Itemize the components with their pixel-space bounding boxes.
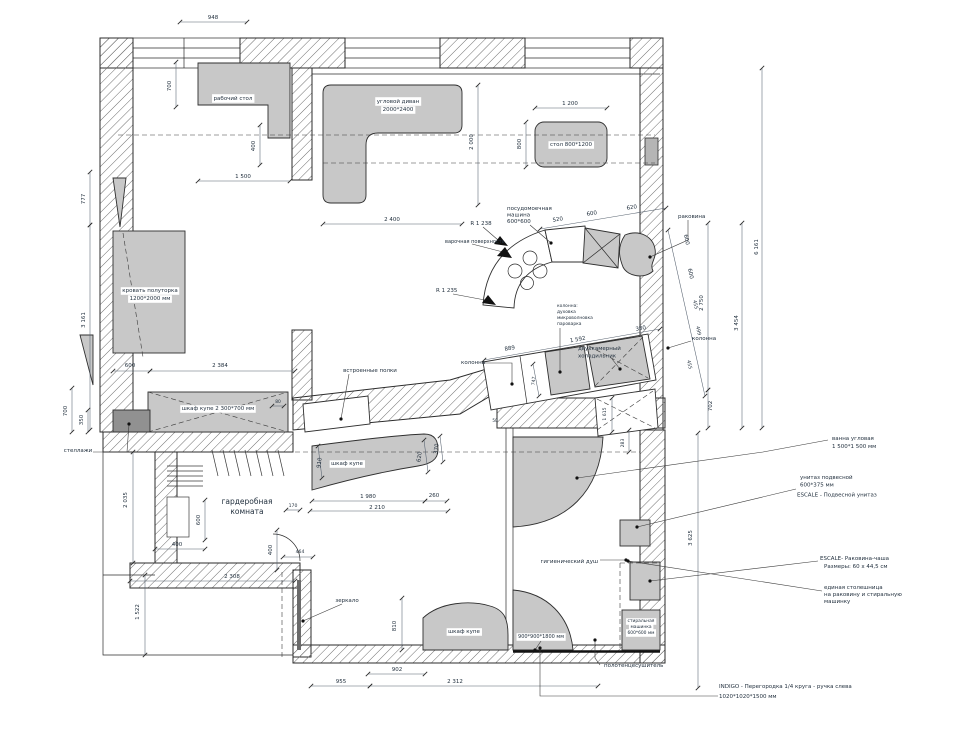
bath-callout-1: ванна угловая (832, 436, 874, 442)
fridge-label-2: холодильник (578, 354, 617, 360)
dimension-text: 464 (296, 549, 305, 555)
dimension-text: 948 (208, 15, 219, 21)
toilet-callout-2: 600*375 мм (800, 483, 834, 489)
bottom-wardrobe-label: шкаф купе (448, 629, 480, 635)
dimension-text: 889 (504, 345, 516, 353)
dishwasher-label-3: 600*600 (507, 219, 531, 225)
dimension-text: 455 (685, 360, 693, 370)
dimension-text: 50 (492, 418, 498, 423)
leader-line (575, 440, 828, 480)
dimension-text: 2 400 (384, 217, 400, 223)
mirror-label: зеркало (335, 598, 359, 604)
bathroom-sink (630, 562, 660, 600)
leader-line (648, 561, 818, 583)
dimension-text: 80 (275, 399, 281, 405)
dimension-line (524, 120, 528, 169)
dimension-text: 620 (626, 204, 638, 212)
dimension-line (86, 408, 90, 434)
dimension-text: 400 (251, 140, 257, 151)
hall-wardrobe-label: шкаф купе (331, 461, 363, 467)
towel-dryer-label: полотенцесушитель (604, 663, 663, 669)
dimension-text: 1 980 (360, 494, 376, 500)
dimension-text: 902 (392, 667, 403, 673)
dimension-text: 600 (125, 363, 136, 369)
fridge-label-1: двухкамерный (578, 345, 621, 352)
dressing-room-label-2: комната (230, 507, 263, 516)
dimension-text: 2 000 (469, 134, 475, 150)
dishwasher-label-1: посудомоечная (507, 206, 552, 212)
column-right-label: колонна (692, 336, 716, 342)
dimension-text: 3 161 (81, 312, 87, 328)
dimension-text: 700 (63, 405, 69, 416)
dimension-text: 600 (686, 268, 694, 280)
dimension-text: 2 308 (224, 574, 240, 580)
dimension-line (131, 450, 135, 565)
dimension-text: 3 625 (688, 530, 694, 546)
corner-bath (513, 437, 603, 527)
desk-label: рабочий стол (214, 95, 253, 102)
dimension-text: 600 (586, 210, 598, 218)
dimension-line (148, 369, 297, 373)
hygienic-shower-label: гигиенический душ (541, 558, 598, 565)
corner-sofa-label-2: 2000*2400 (383, 107, 414, 113)
dimension-text: 350 (79, 414, 85, 425)
dimension-line (88, 223, 92, 432)
kitchen-sink-bowl (620, 233, 656, 276)
dimension-line (476, 83, 480, 207)
bed-label-2: 1200*2000 мм (130, 296, 171, 302)
dimension-text: 520 (552, 216, 564, 224)
dimension-text: 2 312 (447, 679, 463, 685)
dimension-text: 747 (531, 376, 538, 385)
dimension-text: 810 (392, 620, 398, 631)
shower-tray (513, 590, 573, 650)
shower-size-label: 900*900*1800 мм (518, 634, 564, 640)
basin-callout-1: ESCALE- Раковина-чаша (820, 556, 889, 562)
dimension-text: 400 (172, 542, 183, 548)
dimension-text: 702 (708, 401, 714, 412)
bottom-wardrobe (423, 603, 508, 650)
dimension-text: 3 454 (734, 315, 740, 331)
shelving-rack (113, 410, 150, 432)
column-left-label: колонна (461, 360, 485, 366)
dimension-text: 2 384 (212, 363, 228, 369)
dimension-text: 1 200 (562, 101, 578, 107)
dimension-line (281, 555, 315, 559)
bed-label-1: кровать полуторка (122, 288, 177, 294)
dimension-line (696, 431, 700, 690)
dimension-line (423, 499, 449, 503)
dimension-line (70, 386, 74, 434)
countertop-callout-2: на раковину и стиральную (824, 592, 902, 598)
column-stack-label-1: колонна: (557, 304, 578, 309)
dimension-text: 283 (620, 439, 626, 448)
corner-sofa-label-1: угловой диван (377, 98, 420, 105)
builtin-shelves-label: встроенные полки (343, 368, 397, 374)
cooktop-label: варочная поверхность (445, 239, 505, 245)
dining-table-label: стол 800*1200 (550, 142, 593, 148)
mirror (297, 580, 301, 650)
kitchen-sink-label: раковина (678, 214, 705, 220)
dimension-line (368, 684, 600, 688)
countertop-callout-1: единая столешница (824, 585, 883, 591)
dimension-text: 400 (268, 544, 274, 555)
dimension-line (706, 221, 710, 392)
fridge (587, 336, 650, 387)
dimension-line (258, 123, 262, 167)
indigo-callout-2: 1020*1020*1500 мм (719, 694, 777, 700)
basin-callout-2: Размеры: 60 x 44,5 см (824, 564, 888, 570)
shelving-label: стеллажи (64, 448, 93, 454)
wardrobe-interior (167, 450, 284, 537)
dimension-text: 6 161 (754, 239, 760, 255)
column-stack-label-2: духовка (557, 310, 576, 315)
dimension-text: 600 (196, 514, 202, 525)
dimension-text: 955 (336, 679, 347, 685)
countertop-callout-3: машинку (824, 599, 851, 605)
dimension-text: 2 750 (699, 295, 705, 311)
door-leaf (80, 335, 93, 385)
dishwasher-label-2: машина (507, 213, 530, 219)
dimension-line (88, 170, 92, 227)
radius-label-2: R 1 235 (436, 288, 458, 294)
dimension-line (760, 66, 764, 430)
dimension-text: 370 (433, 443, 440, 455)
toilet-callout-3: ESCALE - Подвесной унитаз (797, 492, 877, 499)
dimension-text: 800 (517, 138, 523, 149)
dimension-text: 1 500 (235, 174, 251, 180)
dressing-room-label-1: гардеробная (221, 497, 272, 506)
radius-label-1: R 1 238 (470, 221, 492, 227)
leader-line (666, 341, 691, 350)
indigo-callout-1: INDIGO - Перегородка 1/4 круга - ручка с… (719, 684, 852, 690)
dimension-line (740, 221, 744, 430)
dimension-text: 600 (682, 234, 690, 246)
dimension-line (203, 498, 207, 542)
dimension-text: 260 (429, 493, 440, 499)
floor-plan: 9487004001 5007773 1612 4002 0001 200800… (0, 0, 969, 733)
toilet-callout-1: унитаз подвесной (800, 474, 853, 481)
wardrobe-2300-label: шкаф купе 2 300*700 мм (182, 406, 255, 412)
column-stack-label-3: микроволновка (557, 316, 593, 321)
bath-callout-2: 1 500*1 500 мм (832, 444, 876, 450)
dimension-text: 1 522 (135, 604, 141, 620)
dimension-text: 700 (167, 80, 173, 91)
leader-line (600, 558, 628, 561)
dimension-text: 455 (691, 300, 699, 310)
toilet (620, 520, 650, 546)
dimension-text: 777 (81, 193, 87, 204)
dimension-line (666, 228, 707, 398)
cooktop-burner (521, 277, 534, 290)
dimension-text: 499 (694, 326, 702, 336)
dimension-text: 2 210 (369, 505, 385, 511)
dimension-text: 1 592 (570, 336, 587, 345)
washer-label-1: стиральная (628, 619, 655, 624)
dimension-text: 1 615 (602, 407, 608, 420)
dimension-text: 2 035 (123, 492, 129, 508)
dimension-line (174, 60, 178, 109)
column-stack-label-4: пароварка (557, 322, 582, 327)
washer-label-3: 600*600 мм (628, 630, 655, 636)
dimension-line (400, 596, 404, 652)
dimension-text: 170 (289, 503, 298, 509)
